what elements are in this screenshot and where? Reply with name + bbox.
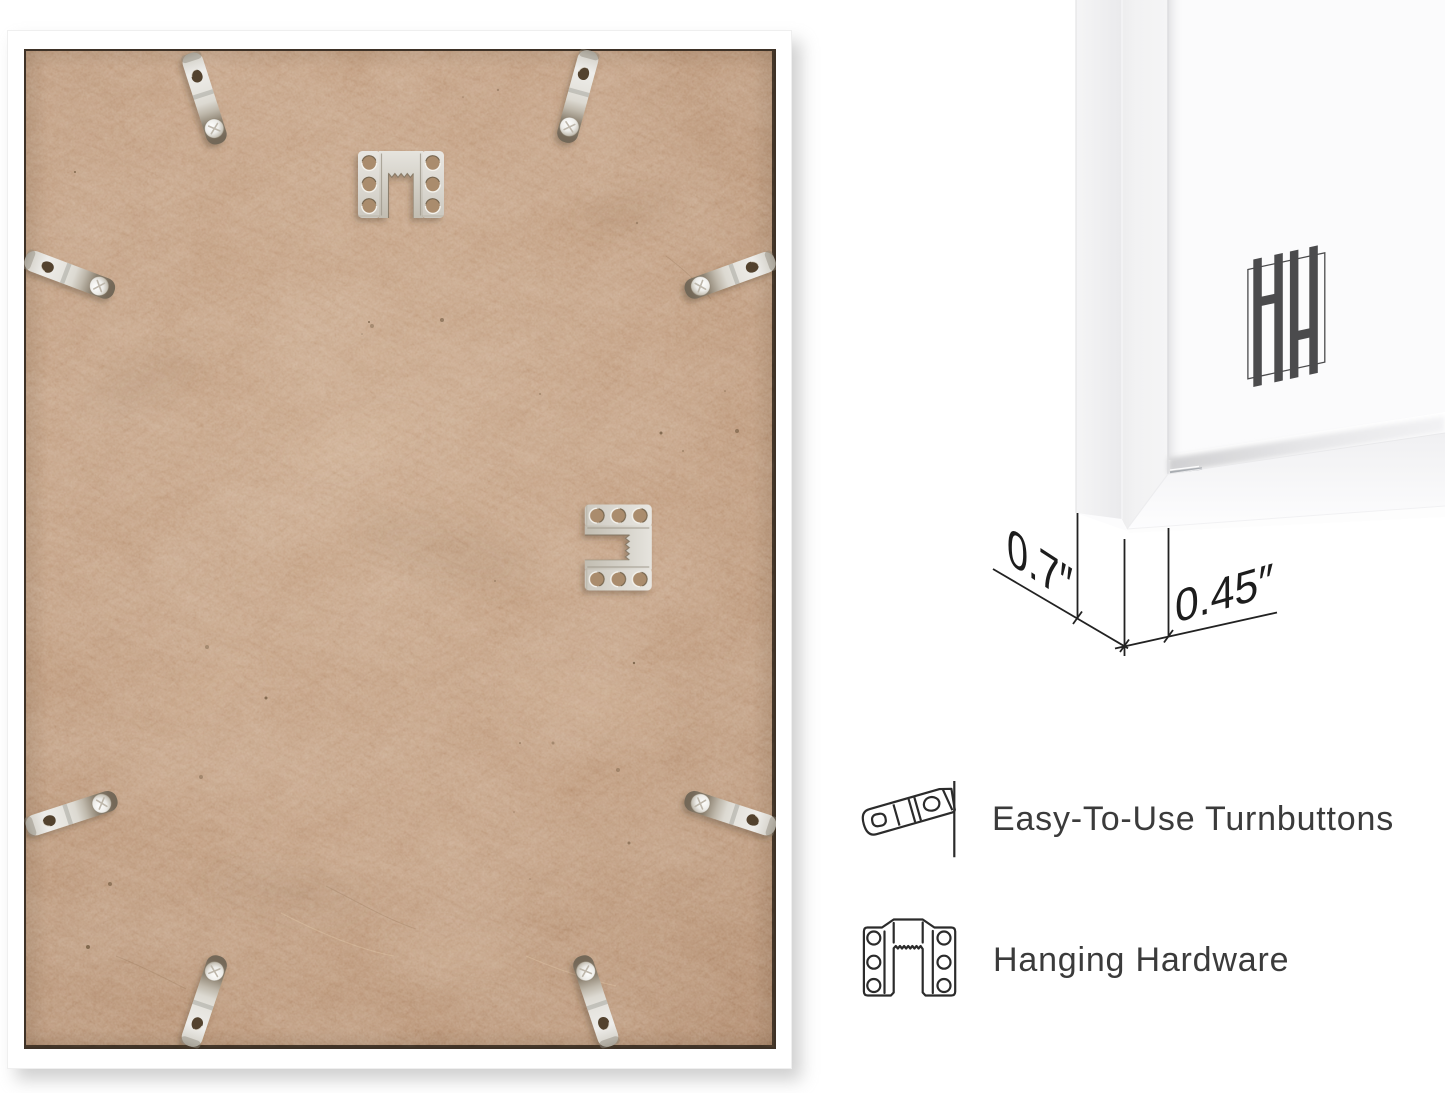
svg-text:0.45″: 0.45″	[1175, 553, 1273, 633]
svg-text:0.7″: 0.7″	[1007, 516, 1073, 616]
